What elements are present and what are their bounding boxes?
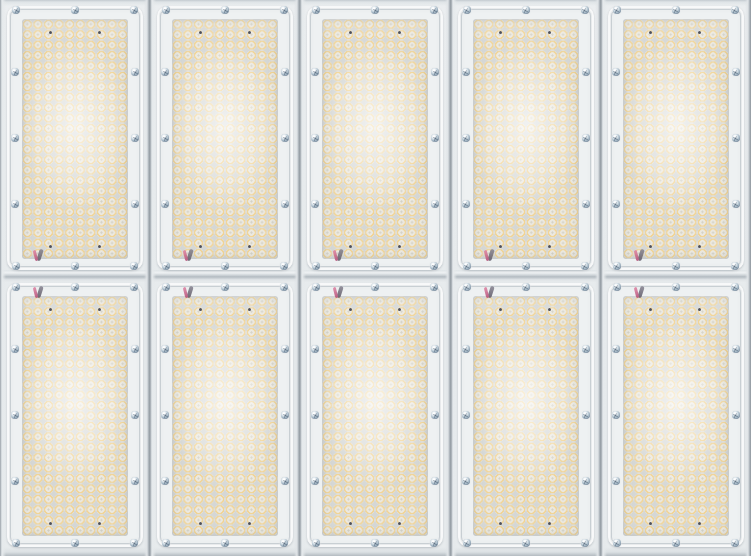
led-panel-top xyxy=(157,6,293,270)
frame-screw xyxy=(431,477,439,485)
wire-reflection xyxy=(34,248,43,263)
led-array xyxy=(623,296,729,536)
led-panel-bottom xyxy=(307,283,443,547)
frame-screw xyxy=(131,200,139,208)
pcb-screw-dot xyxy=(199,308,202,311)
frame-screw xyxy=(612,68,620,76)
wire-pink-strand xyxy=(634,287,640,298)
frame-screw xyxy=(732,200,740,208)
fixture-column xyxy=(0,0,150,556)
pcb-screw-dot xyxy=(248,522,251,525)
wire-reflection xyxy=(34,285,43,300)
pcb-screw-dot xyxy=(698,522,701,525)
frame-screw xyxy=(613,283,621,291)
frame-screw xyxy=(280,262,288,270)
frame-screw xyxy=(161,68,169,76)
frame-screw xyxy=(281,411,289,419)
pcb-screw-dot xyxy=(199,31,202,34)
frame-screw xyxy=(280,539,288,547)
led-array xyxy=(322,19,428,259)
frame-screw xyxy=(131,134,139,142)
frame-screw xyxy=(430,283,438,291)
frame-screw xyxy=(131,411,139,419)
module-seam xyxy=(453,270,599,283)
pcb-screw-dot xyxy=(698,31,701,34)
led-array xyxy=(322,296,428,536)
module-seam xyxy=(152,270,298,283)
frame-screw xyxy=(130,283,138,291)
frame-screw xyxy=(672,283,680,291)
module-seam xyxy=(2,270,148,283)
frame-screw xyxy=(311,134,319,142)
pcb-screw-dot xyxy=(649,308,652,311)
frame-screw xyxy=(11,411,19,419)
frame-screw xyxy=(161,477,169,485)
frame-screw xyxy=(672,262,680,270)
frame-screw xyxy=(281,477,289,485)
pcb-screw-dot xyxy=(499,308,502,311)
frame-screw xyxy=(221,6,229,14)
frame-screw xyxy=(12,6,20,14)
frame-screw xyxy=(280,283,288,291)
frame-screw xyxy=(582,477,590,485)
frame-screw xyxy=(462,200,470,208)
led-floodlight-array xyxy=(0,0,751,556)
pcb-screw-dot xyxy=(199,245,202,248)
led-array xyxy=(623,19,729,259)
led-panel-bottom xyxy=(7,283,143,547)
pcb-screw-dot xyxy=(199,522,202,525)
frame-screw xyxy=(71,539,79,547)
frame-screw xyxy=(582,134,590,142)
frame-screw xyxy=(131,68,139,76)
frame-screw xyxy=(612,200,620,208)
frame-screw xyxy=(613,262,621,270)
frame-screw xyxy=(431,68,439,76)
frame-screw xyxy=(731,262,739,270)
frame-screw xyxy=(522,539,530,547)
frame-screw xyxy=(130,262,138,270)
frame-screw xyxy=(221,283,229,291)
frame-screw xyxy=(312,283,320,291)
frame-screw xyxy=(11,68,19,76)
pcb-screw-dot xyxy=(349,308,352,311)
frame-screw xyxy=(582,411,590,419)
frame-screw xyxy=(311,68,319,76)
pcb-screw-dot xyxy=(349,245,352,248)
pcb-screw-dot xyxy=(649,522,652,525)
wire-pink-strand xyxy=(483,250,489,261)
frame-screw xyxy=(672,539,680,547)
led-panel-top xyxy=(608,6,744,270)
wire-pink-strand xyxy=(634,250,640,261)
wire-reflection xyxy=(334,248,343,263)
frame-screw xyxy=(130,6,138,14)
led-panel-bottom xyxy=(157,283,293,547)
wire-reflection xyxy=(334,285,343,300)
frame-screw xyxy=(12,539,20,547)
pcb-screw-dot xyxy=(248,245,251,248)
pcb-screw-dot xyxy=(398,308,401,311)
frame-screw xyxy=(371,6,379,14)
led-array xyxy=(473,296,579,536)
frame-screw xyxy=(463,283,471,291)
pcb-screw-dot xyxy=(649,245,652,248)
frame-screw xyxy=(612,345,620,353)
frame-screw xyxy=(612,134,620,142)
frame-screw xyxy=(582,68,590,76)
frame-screw xyxy=(582,345,590,353)
frame-screw xyxy=(732,134,740,142)
frame-screw xyxy=(731,283,739,291)
fixture-column xyxy=(601,0,751,556)
pcb-screw-dot xyxy=(49,245,52,248)
frame-screw xyxy=(431,411,439,419)
frame-screw xyxy=(462,68,470,76)
frame-screw xyxy=(462,411,470,419)
frame-screw xyxy=(161,200,169,208)
wire-reflection xyxy=(485,285,494,300)
pcb-screw-dot xyxy=(49,31,52,34)
frame-screw xyxy=(161,134,169,142)
frame-screw xyxy=(162,262,170,270)
frame-screw xyxy=(581,262,589,270)
frame-screw xyxy=(732,345,740,353)
frame-screw xyxy=(11,200,19,208)
frame-screw xyxy=(312,262,320,270)
pcb-screw-dot xyxy=(698,308,701,311)
frame-screw xyxy=(462,477,470,485)
pcb-screw-dot xyxy=(49,522,52,525)
pcb-screw-dot xyxy=(349,522,352,525)
frame-screw xyxy=(731,539,739,547)
pcb-screw-dot xyxy=(398,245,401,248)
wire-reflection xyxy=(184,248,193,263)
pcb-screw-dot xyxy=(698,245,701,248)
pcb-screw-dot xyxy=(98,522,101,525)
frame-screw xyxy=(371,262,379,270)
led-array xyxy=(22,19,128,259)
frame-screw xyxy=(522,6,530,14)
frame-screw xyxy=(613,539,621,547)
frame-screw xyxy=(161,411,169,419)
frame-screw xyxy=(311,345,319,353)
pcb-screw-dot xyxy=(548,308,551,311)
pcb-screw-dot xyxy=(248,31,251,34)
pcb-screw-dot xyxy=(499,245,502,248)
frame-screw xyxy=(463,539,471,547)
frame-screw xyxy=(522,283,530,291)
fixture-column xyxy=(300,0,450,556)
frame-screw xyxy=(11,134,19,142)
frame-screw xyxy=(311,200,319,208)
frame-screw xyxy=(463,262,471,270)
pcb-screw-dot xyxy=(98,31,101,34)
frame-screw xyxy=(731,6,739,14)
pcb-screw-dot xyxy=(98,308,101,311)
frame-screw xyxy=(162,283,170,291)
pcb-screw-dot xyxy=(499,31,502,34)
frame-screw xyxy=(371,283,379,291)
frame-screw xyxy=(280,6,288,14)
fixture-column xyxy=(150,0,300,556)
module-seam xyxy=(302,270,448,283)
frame-screw xyxy=(130,539,138,547)
frame-screw xyxy=(312,539,320,547)
pcb-screw-dot xyxy=(548,245,551,248)
wire-reflection xyxy=(635,248,644,263)
pcb-screw-dot xyxy=(649,31,652,34)
frame-screw xyxy=(612,477,620,485)
frame-screw xyxy=(462,134,470,142)
led-array xyxy=(473,19,579,259)
frame-screw xyxy=(613,6,621,14)
frame-screw xyxy=(162,6,170,14)
frame-screw xyxy=(221,539,229,547)
frame-screw xyxy=(672,6,680,14)
frame-screw xyxy=(431,345,439,353)
pcb-screw-dot xyxy=(398,522,401,525)
frame-screw xyxy=(371,539,379,547)
module-seam xyxy=(603,270,749,283)
frame-screw xyxy=(11,345,19,353)
pcb-screw-dot xyxy=(548,31,551,34)
wire-pink-strand xyxy=(483,287,489,298)
frame-screw xyxy=(281,345,289,353)
frame-screw xyxy=(581,539,589,547)
wire-reflection xyxy=(635,285,644,300)
frame-screw xyxy=(311,411,319,419)
led-panel-bottom xyxy=(608,283,744,547)
wire-reflection xyxy=(485,248,494,263)
frame-screw xyxy=(462,345,470,353)
frame-screw xyxy=(732,477,740,485)
frame-screw xyxy=(522,262,530,270)
frame-screw xyxy=(732,68,740,76)
frame-screw xyxy=(131,477,139,485)
frame-screw xyxy=(281,134,289,142)
frame-screw xyxy=(221,262,229,270)
frame-screw xyxy=(430,262,438,270)
frame-screw xyxy=(281,200,289,208)
frame-screw xyxy=(612,411,620,419)
led-panel-top xyxy=(307,6,443,270)
frame-screw xyxy=(430,539,438,547)
pcb-screw-dot xyxy=(398,31,401,34)
pcb-screw-dot xyxy=(248,308,251,311)
frame-screw xyxy=(12,262,20,270)
frame-screw xyxy=(161,345,169,353)
frame-screw xyxy=(71,283,79,291)
pcb-screw-dot xyxy=(98,245,101,248)
frame-screw xyxy=(581,283,589,291)
frame-screw xyxy=(131,345,139,353)
frame-screw xyxy=(582,200,590,208)
led-array xyxy=(172,19,278,259)
frame-screw xyxy=(430,6,438,14)
pcb-screw-dot xyxy=(49,308,52,311)
pcb-screw-dot xyxy=(499,522,502,525)
led-panel-top xyxy=(7,6,143,270)
fixture-column xyxy=(451,0,601,556)
led-array xyxy=(22,296,128,536)
pcb-screw-dot xyxy=(548,522,551,525)
frame-screw xyxy=(162,539,170,547)
led-panel-top xyxy=(458,6,594,270)
frame-screw xyxy=(12,283,20,291)
pcb-screw-dot xyxy=(349,31,352,34)
frame-screw xyxy=(431,134,439,142)
frame-screw xyxy=(581,6,589,14)
frame-screw xyxy=(431,200,439,208)
frame-screw xyxy=(71,262,79,270)
led-array xyxy=(172,296,278,536)
frame-screw xyxy=(463,6,471,14)
wire-reflection xyxy=(184,285,193,300)
frame-screw xyxy=(71,6,79,14)
frame-screw xyxy=(281,68,289,76)
frame-screw xyxy=(311,477,319,485)
frame-screw xyxy=(11,477,19,485)
frame-screw xyxy=(312,6,320,14)
frame-screw xyxy=(732,411,740,419)
led-panel-bottom xyxy=(458,283,594,547)
